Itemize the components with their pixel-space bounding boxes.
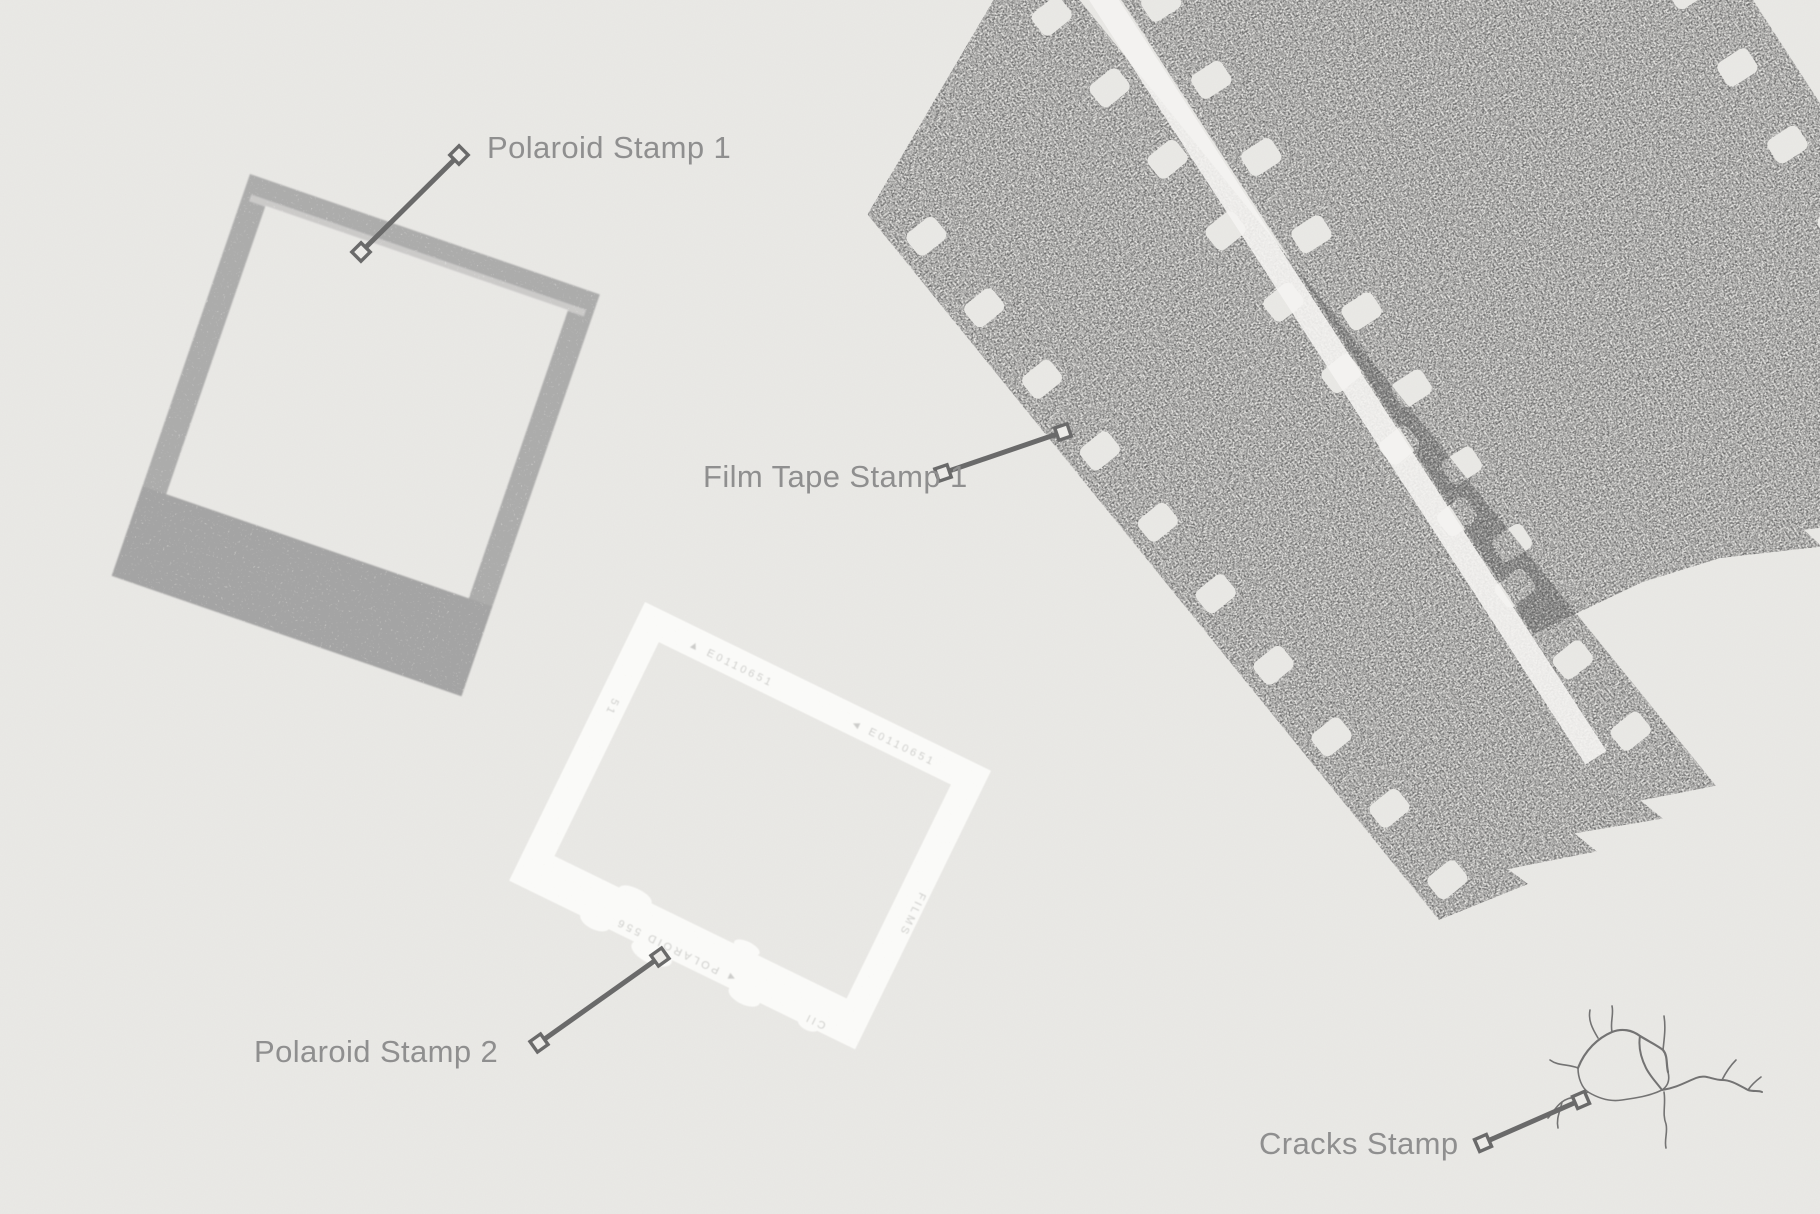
label-cracks-stamp: Cracks Stamp: [1259, 1126, 1458, 1162]
label-polaroid-stamp-2: Polaroid Stamp 2: [254, 1034, 498, 1070]
label-film-tape-stamp-1: Film Tape Stamp 1: [703, 459, 968, 495]
scene-graphics: ▲ E0110651 ◄ E0110651 FILMS ◄ POLAROID 5…: [0, 0, 1820, 1214]
label-polaroid-stamp-1: Polaroid Stamp 1: [487, 130, 731, 166]
stamp-preview-canvas: ▲ E0110651 ◄ E0110651 FILMS ◄ POLAROID 5…: [0, 0, 1820, 1214]
